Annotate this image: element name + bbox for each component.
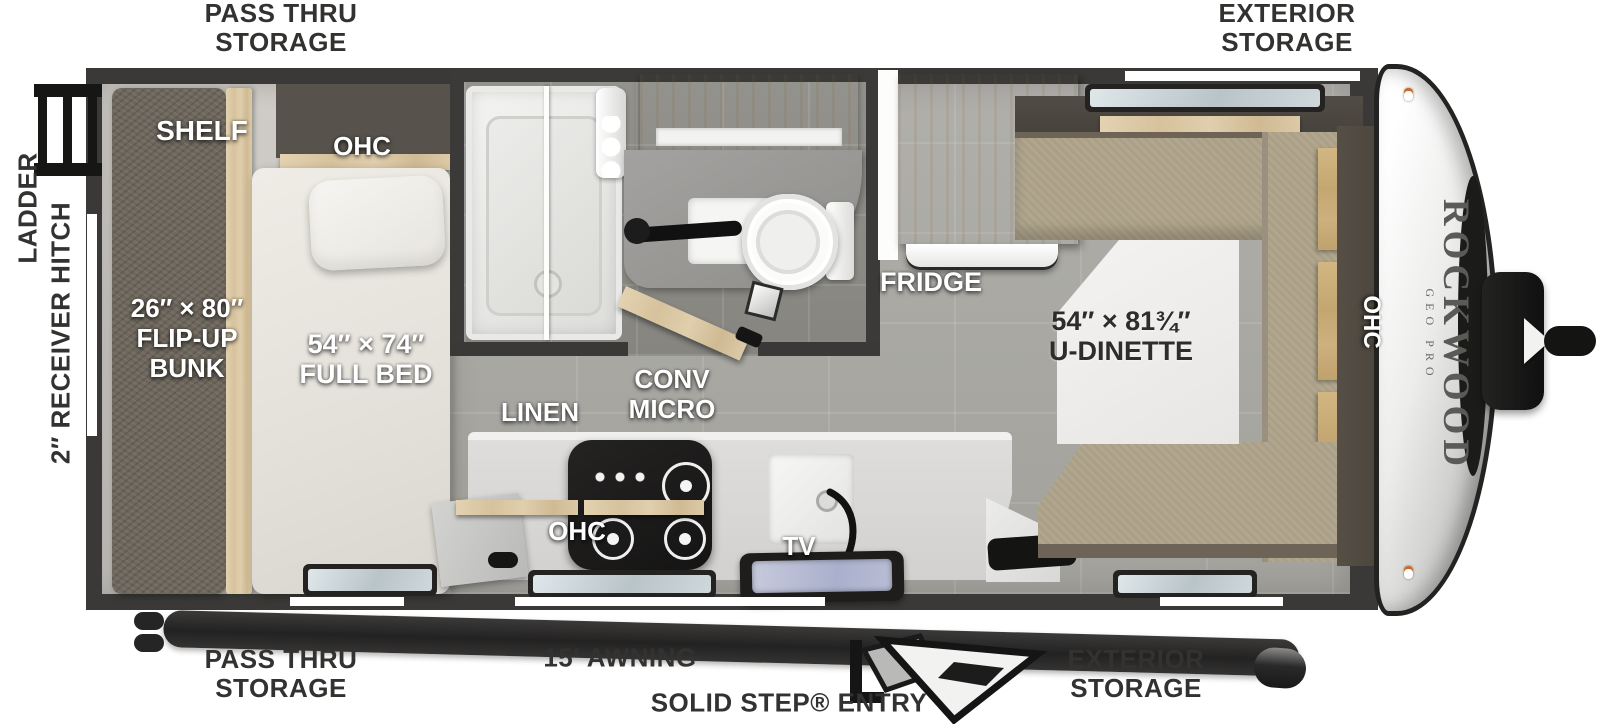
floorplan-canvas: PASS THRU STORAGE EXTERIOR STORAGE LADDE… <box>0 0 1600 724</box>
label-line: STORAGE <box>1219 28 1356 57</box>
bottom-wall-window-strip-kitchen <box>515 597 825 606</box>
awning-end-cap-left2 <box>134 634 164 652</box>
kitchen-ohc-bar-left <box>456 500 578 515</box>
cap-marker-light-top <box>1404 88 1413 101</box>
brand-logo: ROCKWOOD GEO PRO <box>1423 199 1473 471</box>
label-line: PASS THRU <box>205 645 358 674</box>
kitchen-window <box>528 570 716 598</box>
bed-pillow <box>308 175 447 272</box>
label-u-dinette: 54″ × 81¾″ U-DINETTE <box>1049 306 1193 366</box>
label-line: STORAGE <box>1068 674 1205 703</box>
label-line: EXTERIOR <box>1068 645 1205 674</box>
bath-medicine-cabinet <box>640 74 858 162</box>
label-receiver-hitch: 2″ RECEIVER HITCH <box>47 202 76 464</box>
label-full-bed: 54″ × 74″ FULL BED <box>300 329 433 389</box>
kitchen-sink-basin <box>752 559 893 593</box>
tongue-jack-handle <box>1544 326 1596 356</box>
label-flip-up-bunk: 26″ × 80″ FLIP-UP BUNK <box>131 293 243 383</box>
label-shelf: SHELF <box>156 116 248 146</box>
bath-cabinet-glass-strip <box>656 128 842 146</box>
label-pass-thru-storage-top: PASS THRU STORAGE <box>205 0 358 57</box>
top-wall-window-strip <box>1125 71 1360 81</box>
label-line: EXTERIOR <box>1219 0 1356 28</box>
left-wall-window <box>87 214 97 436</box>
label-pass-thru-storage-bottom: PASS THRU STORAGE <box>205 645 358 703</box>
bottom-wall-window-strip-bed <box>290 597 404 606</box>
kitchen-ohc-bar-right <box>584 500 704 515</box>
bedroom-window <box>303 564 437 596</box>
bath-faucet-head <box>624 218 650 244</box>
dinette-bottom-window <box>1113 570 1257 598</box>
label-right-ohc: OHC <box>1356 295 1386 348</box>
dinette-top-window <box>1085 84 1325 112</box>
toilet-seat-inner <box>756 210 820 274</box>
fridge-gap <box>878 70 898 260</box>
label-line: PASS THRU <box>205 0 358 28</box>
label-tv: TV <box>782 531 815 561</box>
shower-caddy-cups <box>594 116 628 178</box>
label-exterior-storage-top: EXTERIOR STORAGE <box>1219 0 1356 57</box>
bathroom-bottom-wall-left <box>450 342 628 356</box>
awning-roller-end <box>1253 646 1308 690</box>
bottom-wall-window-strip-dinette <box>1160 597 1283 606</box>
counter-knob <box>488 552 518 568</box>
cooktop-burner-right <box>664 518 706 560</box>
label-conv-micro: CONV MICRO <box>629 364 716 424</box>
shower-curtain-rod <box>544 86 549 340</box>
label-ladder: LADDER <box>14 152 43 263</box>
label-exterior-storage-bottom: EXTERIOR STORAGE <box>1068 645 1205 703</box>
label-line: STORAGE <box>205 674 358 703</box>
label-fridge: FRIDGE <box>880 267 982 297</box>
awning-end-cap-left <box>134 612 164 630</box>
bathroom-bottom-wall-right <box>758 342 880 356</box>
label-line: STORAGE <box>205 28 358 57</box>
brand-name: ROCKWOOD <box>1437 199 1473 471</box>
label-linen: LINEN <box>501 397 579 427</box>
dinette-sill-wood <box>1100 116 1300 132</box>
label-solid-step-entry: SOLID STEP® ENTRY <box>651 689 928 718</box>
cap-marker-light-bottom <box>1404 566 1413 579</box>
label-awning: 15′ AWNING <box>543 644 696 673</box>
cooktop-dots <box>594 471 646 483</box>
label-kitchen-ohc: OHC <box>548 516 606 546</box>
dinette-bench-bottom <box>1038 442 1360 558</box>
ladder-icon <box>34 84 102 176</box>
label-bed-ohc: OHC <box>333 131 391 161</box>
